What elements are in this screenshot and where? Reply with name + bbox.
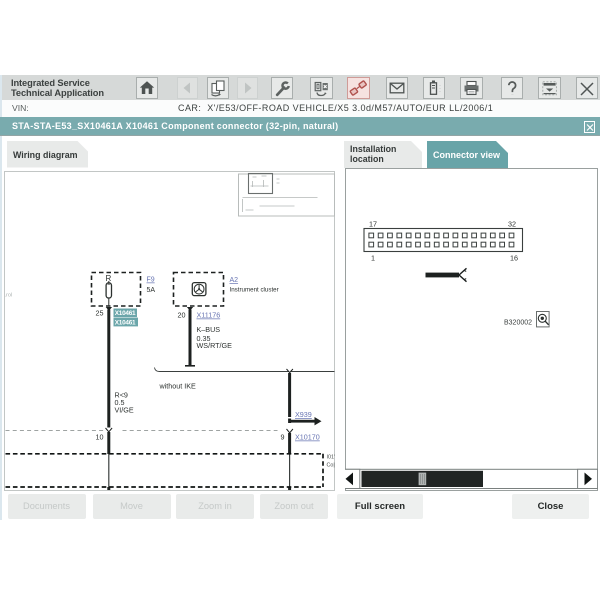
- svg-text:9: 9: [280, 433, 284, 442]
- svg-text:10: 10: [95, 433, 103, 442]
- svg-text:K–BUS: K–BUS: [196, 325, 220, 334]
- svg-text:5A: 5A: [146, 287, 155, 294]
- svg-text:without IKE: without IKE: [158, 382, 196, 391]
- svg-text:X10461: X10461: [114, 320, 135, 327]
- svg-text:X939: X939: [295, 410, 312, 419]
- svg-text:X10170: X10170: [295, 433, 320, 442]
- svg-text:Instrument cluster: Instrument cluster: [229, 287, 278, 294]
- svg-text:B320002: B320002: [504, 320, 532, 327]
- svg-text:.rol: .rol: [5, 293, 12, 299]
- svg-text:A2: A2: [229, 277, 238, 284]
- svg-text:F9: F9: [146, 277, 154, 284]
- svg-text:17: 17: [369, 220, 377, 229]
- svg-text:32: 32: [508, 220, 516, 229]
- svg-text:WS/RT/GE: WS/RT/GE: [196, 341, 232, 350]
- svg-text:Co|: Co|: [326, 463, 334, 469]
- svg-text:16: 16: [510, 254, 518, 263]
- svg-text:X11176: X11176: [196, 311, 220, 320]
- svg-text:VI/GE: VI/GE: [114, 406, 133, 415]
- svg-text:25: 25: [95, 309, 103, 318]
- svg-text:I01′: I01′: [326, 455, 335, 461]
- svg-text:20: 20: [177, 311, 185, 320]
- svg-text:1: 1: [371, 254, 375, 263]
- svg-text:X10461: X10461: [114, 310, 135, 317]
